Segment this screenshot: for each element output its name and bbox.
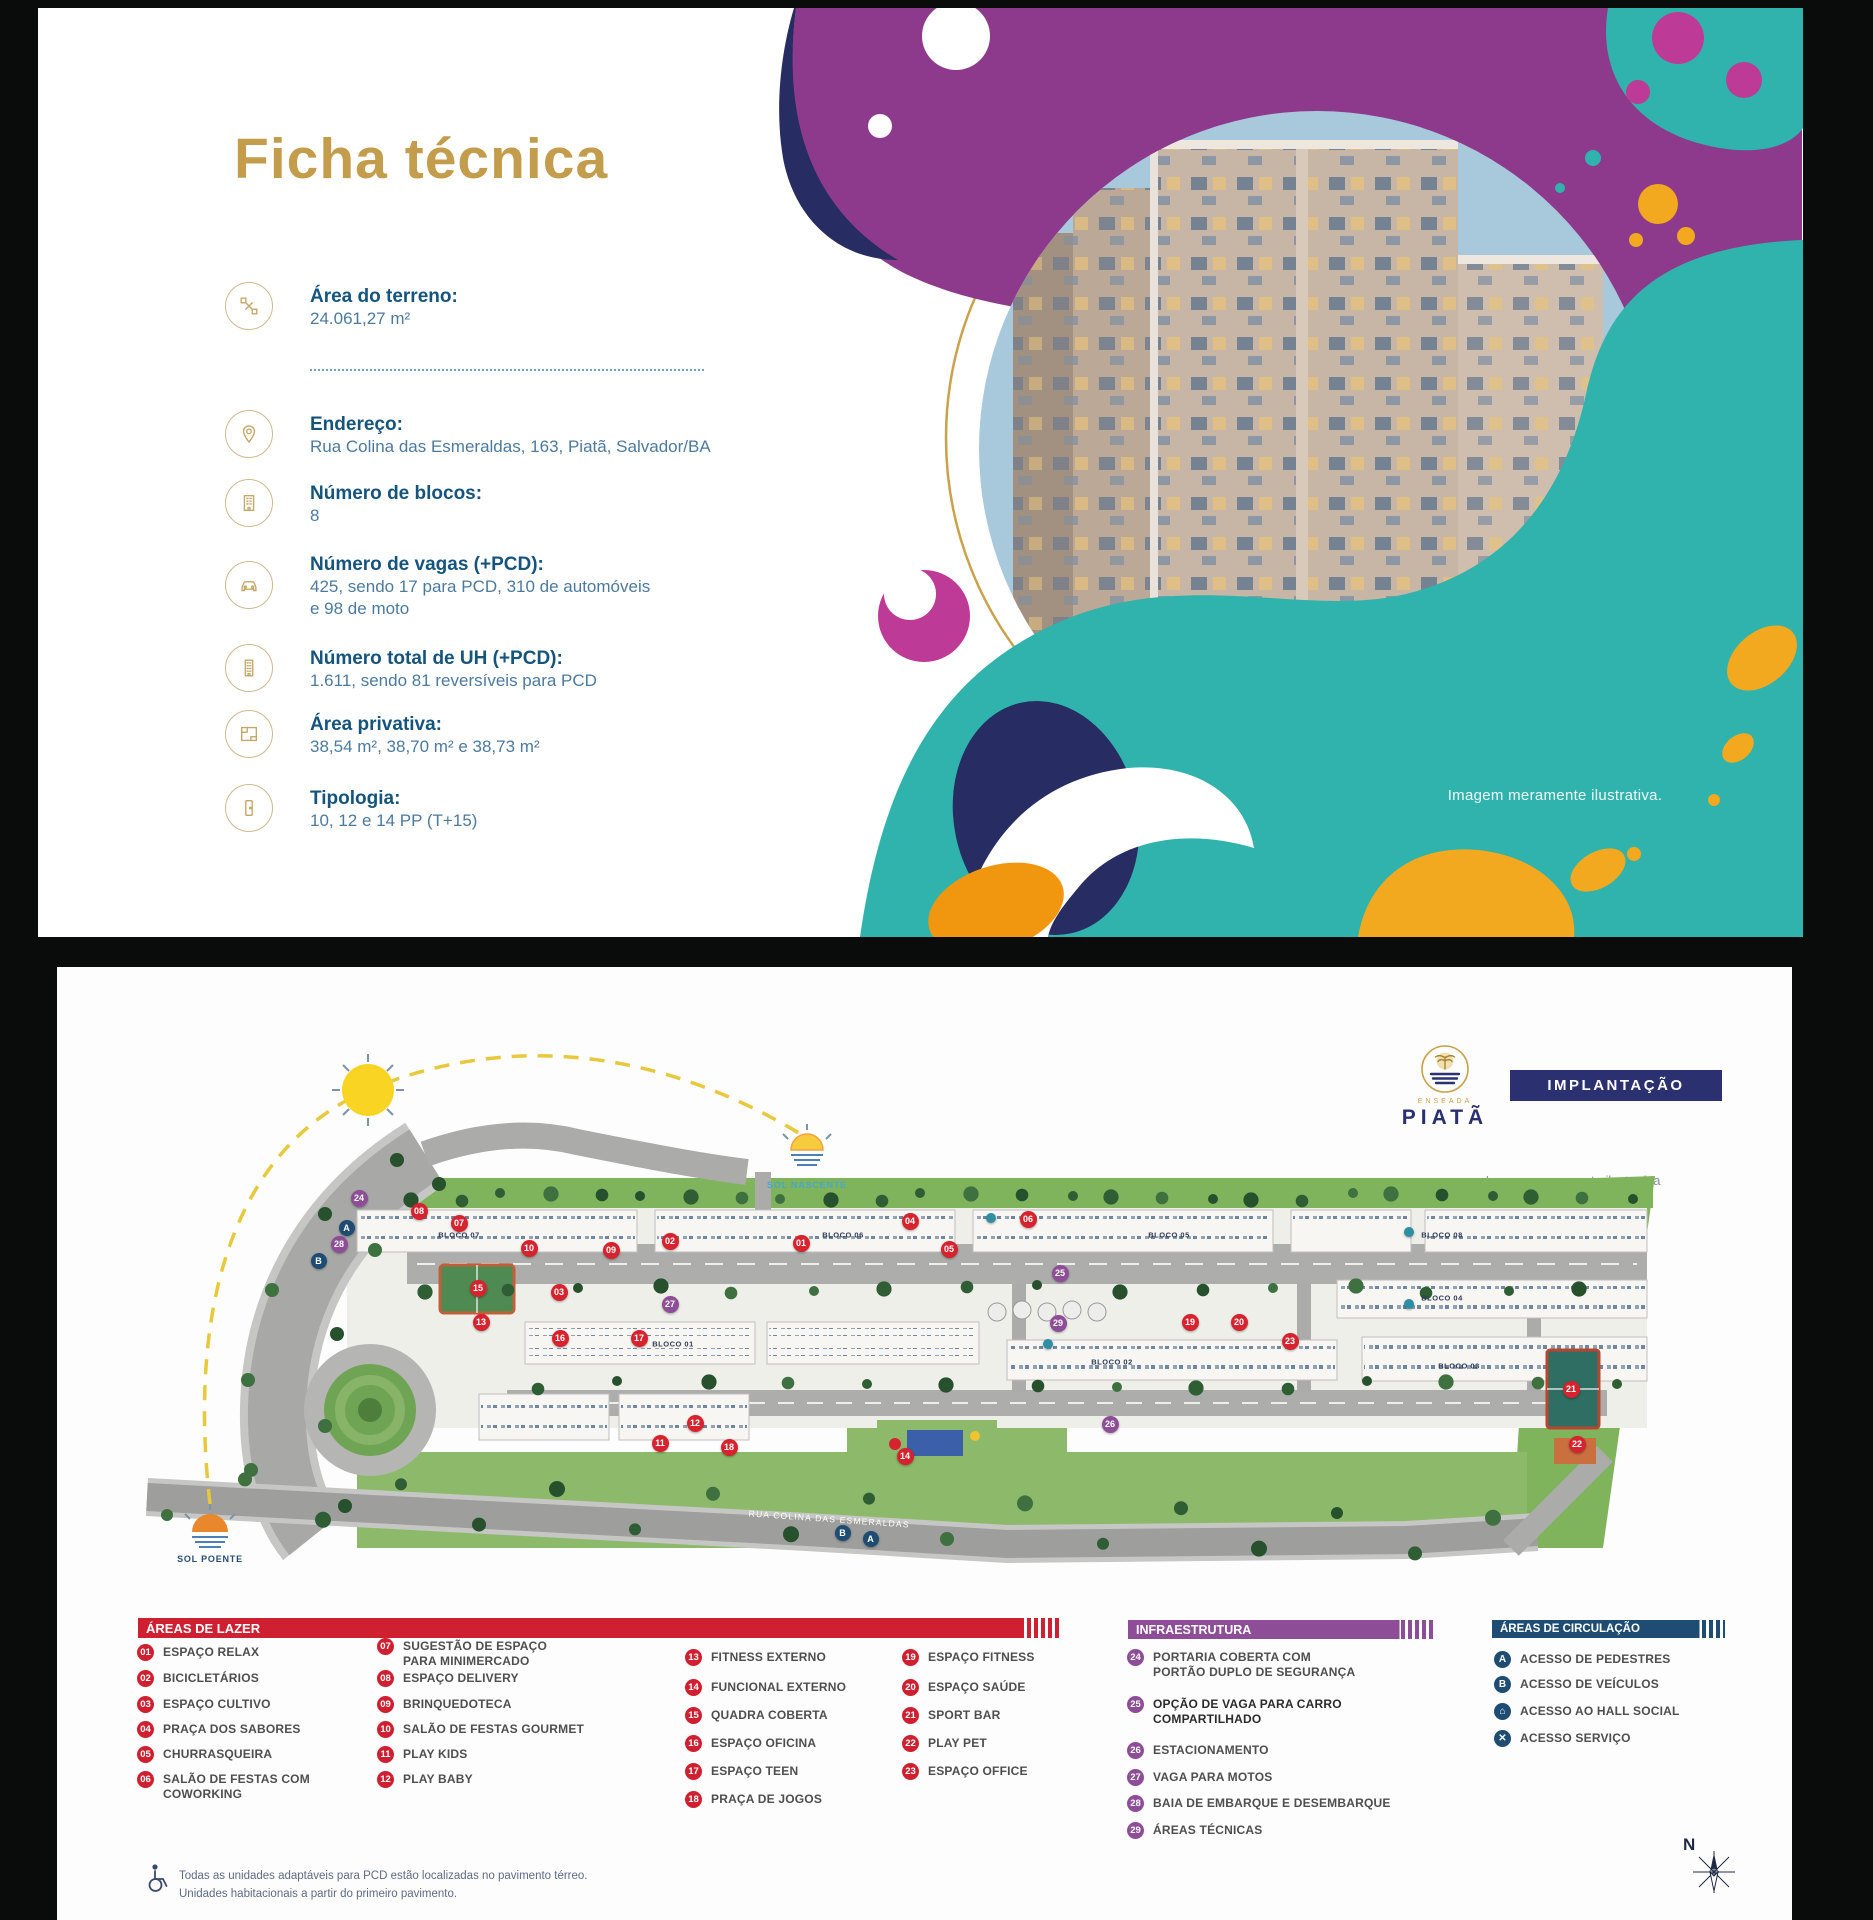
plan-marker: 22 (1569, 1436, 1586, 1453)
spec-label: Número de blocos: (310, 482, 870, 505)
spec-label: Área privativa: (310, 713, 870, 736)
legend-item-number: 16 (685, 1735, 702, 1752)
legend-item-label: ESPAÇO OFFICE (928, 1764, 1028, 1779)
legend-item-number: 25 (1127, 1696, 1144, 1713)
floorplan-icon (225, 710, 273, 758)
plan-marker: 24 (351, 1190, 368, 1207)
legend-item-number: 07 (377, 1638, 394, 1655)
legend-item-number: 17 (685, 1763, 702, 1780)
building-icon (225, 479, 273, 527)
spec-value: 38,54 m², 38,70 m² e 38,73 m² (310, 736, 870, 758)
legend-item-number: 23 (902, 1763, 919, 1780)
hall-access-icon: ⌂ (1494, 1703, 1511, 1720)
legend-item-label: BRINQUEDOTECA (403, 1697, 512, 1712)
spec-label: Número total de UH (+PCD): (310, 647, 870, 670)
legend-item-number: 20 (902, 1679, 919, 1696)
implantacao-panel: ENSEADA PIATÃ IMPLANTAÇÃO Imagem meramen… (57, 967, 1792, 1920)
spec-uh: Número total de UH (+PCD): 1.611, sendo … (225, 647, 870, 692)
plan-marker: 07 (451, 1215, 468, 1232)
legend-item-label: OPÇÃO DE VAGA PARA CARROCOMPARTILHADO (1153, 1697, 1342, 1727)
legend-item-number: 21 (902, 1707, 919, 1724)
spec-value: e 98 de moto (310, 598, 870, 620)
legend-item-label: PLAY PET (928, 1736, 987, 1751)
wheelchair-icon (145, 1863, 171, 1898)
plan-marker: 17 (631, 1330, 648, 1347)
legend-item-label: ESPAÇO CULTIVO (163, 1697, 271, 1712)
legend-item-label: PRAÇA DE JOGOS (711, 1792, 822, 1807)
plan-marker: 05 (941, 1241, 958, 1258)
gold-ring (946, 84, 1654, 792)
legend-item-label: FUNCIONAL EXTERNO (711, 1680, 846, 1695)
pedestrian-access-icon: A (1494, 1651, 1511, 1668)
legend-item-number: 02 (137, 1670, 154, 1687)
spec-value: Rua Colina das Esmeraldas, 163, Piatã, S… (310, 436, 870, 458)
plan-marker: 14 (897, 1448, 914, 1465)
legend-item-number: 03 (137, 1696, 154, 1713)
legend-item-label: FITNESS EXTERNO (711, 1650, 826, 1665)
legend-item-label: ESPAÇO OFICINA (711, 1736, 816, 1751)
legend-item-label: BAIA DE EMBARQUE E DESEMBARQUE (1153, 1796, 1391, 1811)
legend-item-number: 05 (137, 1746, 154, 1763)
tower-icon (225, 644, 273, 692)
legend-item-label: ÁREAS TÉCNICAS (1153, 1823, 1262, 1838)
spec-label: Área do terreno: (310, 285, 870, 308)
legend-header-lazer: ÁREAS DE LAZER (138, 1618, 1060, 1638)
legend-item-label: ACESSO DE VEÍCULOS (1520, 1677, 1659, 1692)
legend-item-label: ESPAÇO FITNESS (928, 1650, 1035, 1665)
plan-marker: 06 (1020, 1211, 1037, 1228)
plan-marker: 01 (793, 1235, 810, 1252)
page-title: Ficha técnica (234, 126, 608, 192)
legend-item-label: CHURRASQUEIRA (163, 1747, 272, 1762)
plan-marker: 29 (1050, 1315, 1067, 1332)
plan-marker: 23 (1282, 1333, 1299, 1350)
legend-item-label: ACESSO SERVIÇO (1520, 1731, 1631, 1746)
spec-blocos: Número de blocos: 8 (225, 482, 870, 527)
legend-header-circulacao: ÁREAS DE CIRCULAÇÃO (1492, 1620, 1725, 1638)
legend-item-label: SALÃO DE FESTAS GOURMET (403, 1722, 584, 1737)
legend-item-label: ACESSO AO HALL SOCIAL (1520, 1704, 1680, 1719)
spec-value: 425, sendo 17 para PCD, 310 de automóvei… (310, 576, 870, 598)
legend-item-label: ESPAÇO DELIVERY (403, 1671, 519, 1686)
legend-item-label: ESPAÇO SAÚDE (928, 1680, 1026, 1695)
spec-area-privativa: Área privativa: 38,54 m², 38,70 m² e 38,… (225, 713, 870, 758)
legend-item-number: 27 (1127, 1769, 1144, 1786)
legend-item-number: 04 (137, 1721, 154, 1738)
plan-marker: 04 (902, 1213, 919, 1230)
legend-item-label: PLAY KIDS (403, 1747, 468, 1762)
plan-marker: 20 (1231, 1314, 1248, 1331)
plan-marker: 02 (662, 1233, 679, 1250)
plan-marker: 27 (662, 1296, 679, 1313)
area-icon (225, 282, 273, 330)
legend-item-number: 18 (685, 1791, 702, 1808)
plan-marker: 10 (521, 1240, 538, 1257)
plan-marker (1404, 1299, 1414, 1309)
brochure-page: Imagem meramente ilustrativa. Ficha técn… (0, 0, 1873, 1920)
spec-value: 8 (310, 505, 870, 527)
legend-item-label: PLAY BABY (403, 1772, 473, 1787)
compass: N (1657, 1835, 1757, 1905)
plan-marker: B (835, 1525, 851, 1541)
legend-item-number: 13 (685, 1649, 702, 1666)
dotted-divider (310, 369, 704, 371)
spec-value: 10, 12 e 14 PP (T+15) (310, 810, 870, 832)
plan-marker: 26 (1102, 1416, 1119, 1433)
plan-marker: 15 (470, 1280, 487, 1297)
legend-item-number: 29 (1127, 1822, 1144, 1839)
plan-marker (1043, 1339, 1053, 1349)
legend-item-number: 10 (377, 1721, 394, 1738)
legend-item-label: BICICLETÁRIOS (163, 1671, 259, 1686)
plan-marker: 21 (1563, 1381, 1580, 1398)
legend-item-label: SUGESTÃO DE ESPAÇOPARA MINIMERCADO (403, 1639, 547, 1669)
plan-marker: 09 (603, 1242, 620, 1259)
legend-item-label: ESTACIONAMENTO (1153, 1743, 1269, 1758)
spec-value: 1.611, sendo 81 reversíveis para PCD (310, 670, 870, 692)
plan-marker: 13 (473, 1314, 490, 1331)
legend-item-number: 24 (1127, 1649, 1144, 1666)
legend-item-label: QUADRA COBERTA (711, 1708, 828, 1723)
plan-marker: 28 (331, 1236, 348, 1253)
plan-marker: 19 (1182, 1314, 1199, 1331)
bloco-label: BLOCO 08 (1421, 1231, 1463, 1240)
image-disclaimer-top: Imagem meramente ilustrativa. (1448, 787, 1663, 804)
plan-marker: 12 (687, 1415, 704, 1432)
plan-marker: A (339, 1220, 355, 1236)
spec-label: Endereço: (310, 413, 870, 436)
building-photo (979, 111, 1655, 799)
bloco-label: BLOCO 05 (1148, 1231, 1190, 1240)
plan-marker: B (311, 1253, 327, 1269)
spec-area-terreno: Área do terreno: 24.061,27 m² (225, 285, 870, 330)
legend-item-number: 08 (377, 1670, 394, 1687)
legend-item-label: ESPAÇO TEEN (711, 1764, 798, 1779)
legend-item-label: PRAÇA DOS SABORES (163, 1722, 301, 1737)
bloco-label: BLOCO 03 (1438, 1362, 1480, 1371)
bloco-label: BLOCO 04 (1421, 1294, 1463, 1303)
spec-label: Número de vagas (+PCD): (310, 553, 870, 576)
door-icon (225, 784, 273, 832)
legend-item-number: 19 (902, 1649, 919, 1666)
map-pin-icon (225, 410, 273, 458)
legend-item-number: 22 (902, 1735, 919, 1752)
legend-header-infra: INFRAESTRUTURA (1128, 1620, 1433, 1639)
legend-item-number: 01 (137, 1644, 154, 1661)
legend-item-number: 26 (1127, 1742, 1144, 1759)
legend-item-number: 28 (1127, 1795, 1144, 1812)
siteplan: SOL NASCENTE SOL POENTE RUA COLINA DAS E… (107, 992, 1747, 1582)
siteplan-markers: 0102030405060708091011121314151617181920… (107, 992, 1747, 1582)
spec-tipologia: Tipologia: 10, 12 e 14 PP (T+15) (225, 787, 870, 832)
bloco-label: BLOCO 07 (438, 1231, 480, 1240)
spec-endereco: Endereço: Rua Colina das Esmeraldas, 163… (225, 413, 870, 458)
plan-marker: 03 (551, 1284, 568, 1301)
bloco-label: BLOCO 01 (652, 1340, 694, 1349)
legend-item-label: SPORT BAR (928, 1708, 1000, 1723)
plan-marker: 08 (411, 1203, 428, 1220)
ficha-tecnica-panel: Imagem meramente ilustrativa. Ficha técn… (38, 8, 1803, 937)
service-access-icon: ✕ (1494, 1730, 1511, 1747)
legend-item-label: ESPAÇO RELAX (163, 1645, 259, 1660)
vehicle-access-icon: B (1494, 1676, 1511, 1693)
plan-marker: 11 (652, 1435, 669, 1452)
plan-marker (1404, 1227, 1414, 1237)
legend-item-number: 15 (685, 1707, 702, 1724)
spec-value: 24.061,27 m² (310, 308, 870, 330)
car-icon (225, 561, 273, 609)
spec-label: Tipologia: (310, 787, 870, 810)
plan-marker (986, 1213, 996, 1223)
pcd-footnote: Todas as unidades adaptáveis para PCD es… (179, 1867, 588, 1903)
legend-item-number: 11 (377, 1746, 394, 1763)
plan-marker: 18 (721, 1439, 738, 1456)
plan-marker: A (863, 1531, 879, 1547)
legend-item-number: 12 (377, 1771, 394, 1788)
legend-item-label: PORTARIA COBERTA COMPORTÃO DUPLO DE SEGU… (1153, 1650, 1355, 1680)
legend-item-number: 14 (685, 1679, 702, 1696)
compass-rose-icon (1691, 1849, 1737, 1895)
spec-vagas: Número de vagas (+PCD): 425, sendo 17 pa… (225, 553, 870, 620)
legend-item-label: ACESSO DE PEDESTRES (1520, 1652, 1671, 1667)
legend-item-number: 09 (377, 1696, 394, 1713)
bloco-label: BLOCO 02 (1091, 1358, 1133, 1367)
legend-item-label: VAGA PARA MOTOS (1153, 1770, 1272, 1785)
legend-item-label: SALÃO DE FESTAS COMCOWORKING (163, 1772, 310, 1802)
plan-marker: 25 (1052, 1265, 1069, 1282)
bloco-label: BLOCO 06 (822, 1231, 864, 1240)
plan-marker: 16 (552, 1330, 569, 1347)
legend-item-number: 06 (137, 1771, 154, 1788)
